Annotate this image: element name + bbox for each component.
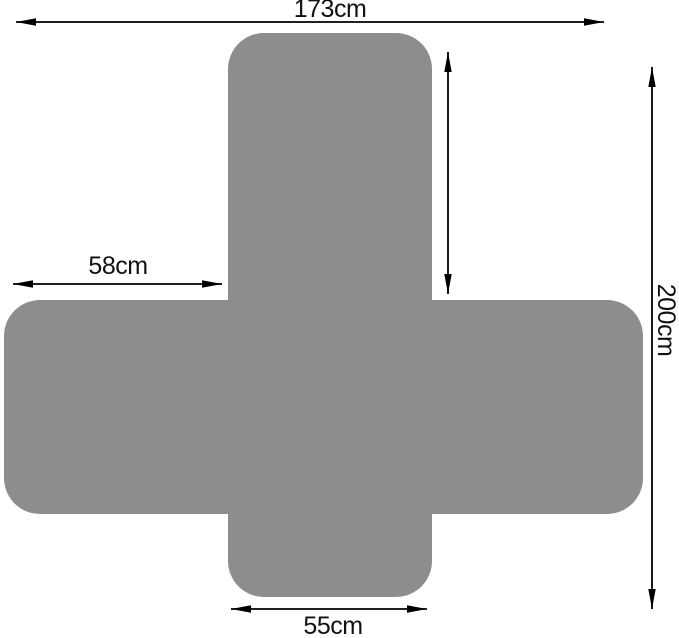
total-height-label: 200cm <box>651 284 679 357</box>
bottom-flap-label: 55cm <box>303 613 362 638</box>
top-width-label: 173cm <box>294 0 367 24</box>
left-arm-label: 58cm <box>88 253 147 281</box>
cover-shape-horizontal-bar <box>4 300 643 514</box>
dimension-diagram: 173cm 58cm 200cm 55cm <box>0 0 679 638</box>
